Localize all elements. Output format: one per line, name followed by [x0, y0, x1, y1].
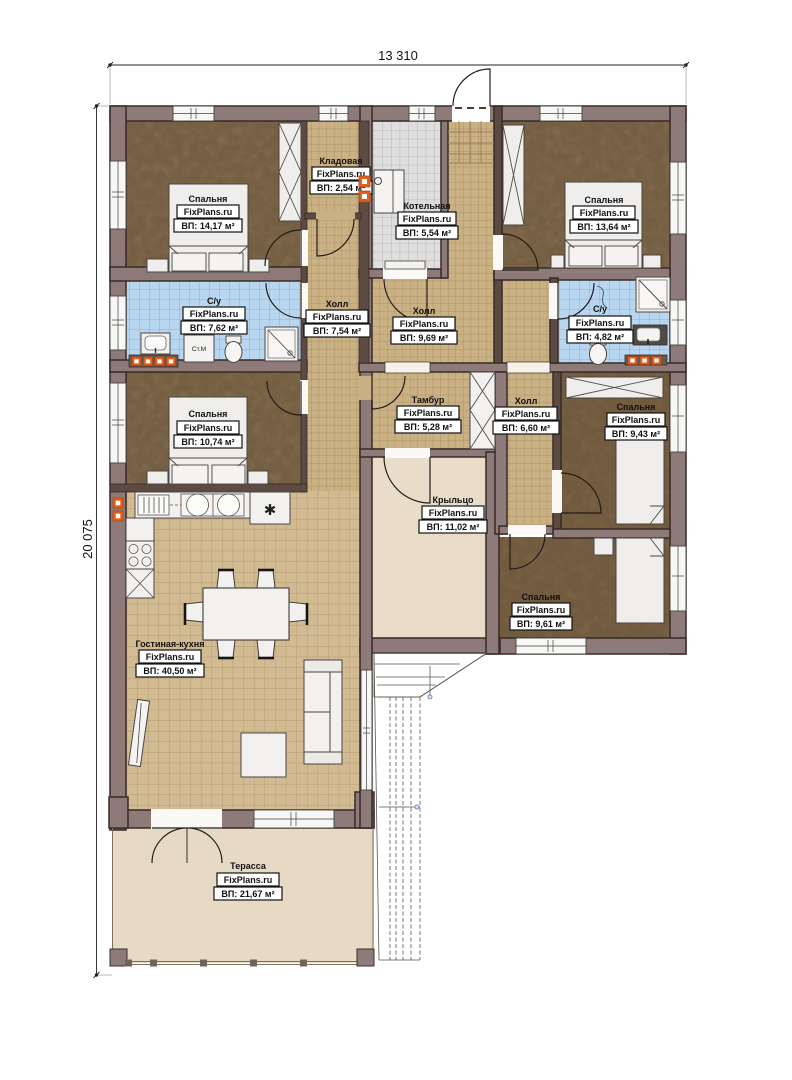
- svg-text:✱: ✱: [264, 502, 277, 519]
- svg-text:ВП: 7,54 м²: ВП: 7,54 м²: [313, 326, 361, 336]
- svg-text:Котельная: Котельная: [403, 201, 450, 211]
- svg-text:ВП: 6,60 м²: ВП: 6,60 м²: [502, 423, 550, 433]
- svg-text:FixPlans.ru: FixPlans.ru: [400, 319, 449, 329]
- svg-text:FixPlans.ru: FixPlans.ru: [317, 169, 366, 179]
- svg-text:Спальня: Спальня: [617, 402, 656, 412]
- svg-text:FixPlans.ru: FixPlans.ru: [146, 652, 195, 662]
- svg-text:ВП: 11,02 м²: ВП: 11,02 м²: [427, 522, 480, 532]
- svg-text:ВП: 9,43 м²: ВП: 9,43 м²: [612, 429, 660, 439]
- svg-text:ВП: 9,69 м²: ВП: 9,69 м²: [400, 333, 448, 343]
- svg-text:Тамбур: Тамбур: [412, 395, 445, 405]
- svg-text:Спальня: Спальня: [522, 592, 561, 602]
- svg-text:FixPlans.ru: FixPlans.ru: [580, 208, 629, 218]
- svg-text:С/у: С/у: [207, 296, 221, 306]
- svg-text:FixPlans.ru: FixPlans.ru: [190, 309, 239, 319]
- svg-text:ВП: 40,50 м²: ВП: 40,50 м²: [143, 666, 196, 676]
- svg-text:Крыльцо: Крыльцо: [433, 495, 474, 505]
- svg-text:FixPlans.ru: FixPlans.ru: [184, 423, 233, 433]
- svg-text:ВП: 7,62 м²: ВП: 7,62 м²: [190, 323, 238, 333]
- svg-text:FixPlans.ru: FixPlans.ru: [502, 409, 551, 419]
- svg-text:Спальня: Спальня: [189, 194, 228, 204]
- svg-text:ВП: 14,17 м²: ВП: 14,17 м²: [181, 221, 234, 231]
- svg-text:FixPlans.ru: FixPlans.ru: [313, 312, 362, 322]
- svg-text:FixPlans.ru: FixPlans.ru: [429, 508, 478, 518]
- svg-text:Спальня: Спальня: [585, 195, 624, 205]
- svg-text:FixPlans.ru: FixPlans.ru: [612, 415, 661, 425]
- svg-text:FixPlans.ru: FixPlans.ru: [404, 408, 453, 418]
- svg-text:FixPlans.ru: FixPlans.ru: [403, 214, 452, 224]
- svg-text:FixPlans.ru: FixPlans.ru: [576, 318, 625, 328]
- svg-text:ВП: 13,64 м²: ВП: 13,64 м²: [577, 222, 630, 232]
- svg-text:ВП: 21,67 м²: ВП: 21,67 м²: [221, 889, 274, 899]
- svg-text:Холл: Холл: [326, 299, 349, 309]
- svg-text:FixPlans.ru: FixPlans.ru: [184, 207, 233, 217]
- svg-text:ВП: 4,82 м²: ВП: 4,82 м²: [576, 332, 624, 342]
- svg-text:Спальня: Спальня: [189, 409, 228, 419]
- svg-text:FixPlans.ru: FixPlans.ru: [224, 875, 273, 885]
- svg-text:Терасса: Терасса: [230, 861, 267, 871]
- svg-text:13 310: 13 310: [378, 48, 418, 63]
- svg-text:ВП: 2,54 м²: ВП: 2,54 м²: [317, 183, 365, 193]
- svg-text:ВП: 5,28 м²: ВП: 5,28 м²: [404, 422, 452, 432]
- svg-text:С/у: С/у: [593, 304, 607, 314]
- svg-text:Ст.М: Ст.М: [192, 346, 206, 353]
- svg-text:Кладовая: Кладовая: [319, 156, 362, 166]
- svg-text:Холл: Холл: [515, 396, 538, 406]
- svg-text:Холл: Холл: [413, 306, 436, 316]
- svg-text:20 075: 20 075: [80, 519, 95, 559]
- svg-text:ВП: 10,74 м²: ВП: 10,74 м²: [181, 437, 234, 447]
- svg-text:ВП: 9,61 м²: ВП: 9,61 м²: [517, 619, 565, 629]
- svg-text:Гостиная-кухня: Гостиная-кухня: [136, 639, 205, 649]
- svg-text:FixPlans.ru: FixPlans.ru: [517, 605, 566, 615]
- svg-text:ВП: 5,54 м²: ВП: 5,54 м²: [403, 228, 451, 238]
